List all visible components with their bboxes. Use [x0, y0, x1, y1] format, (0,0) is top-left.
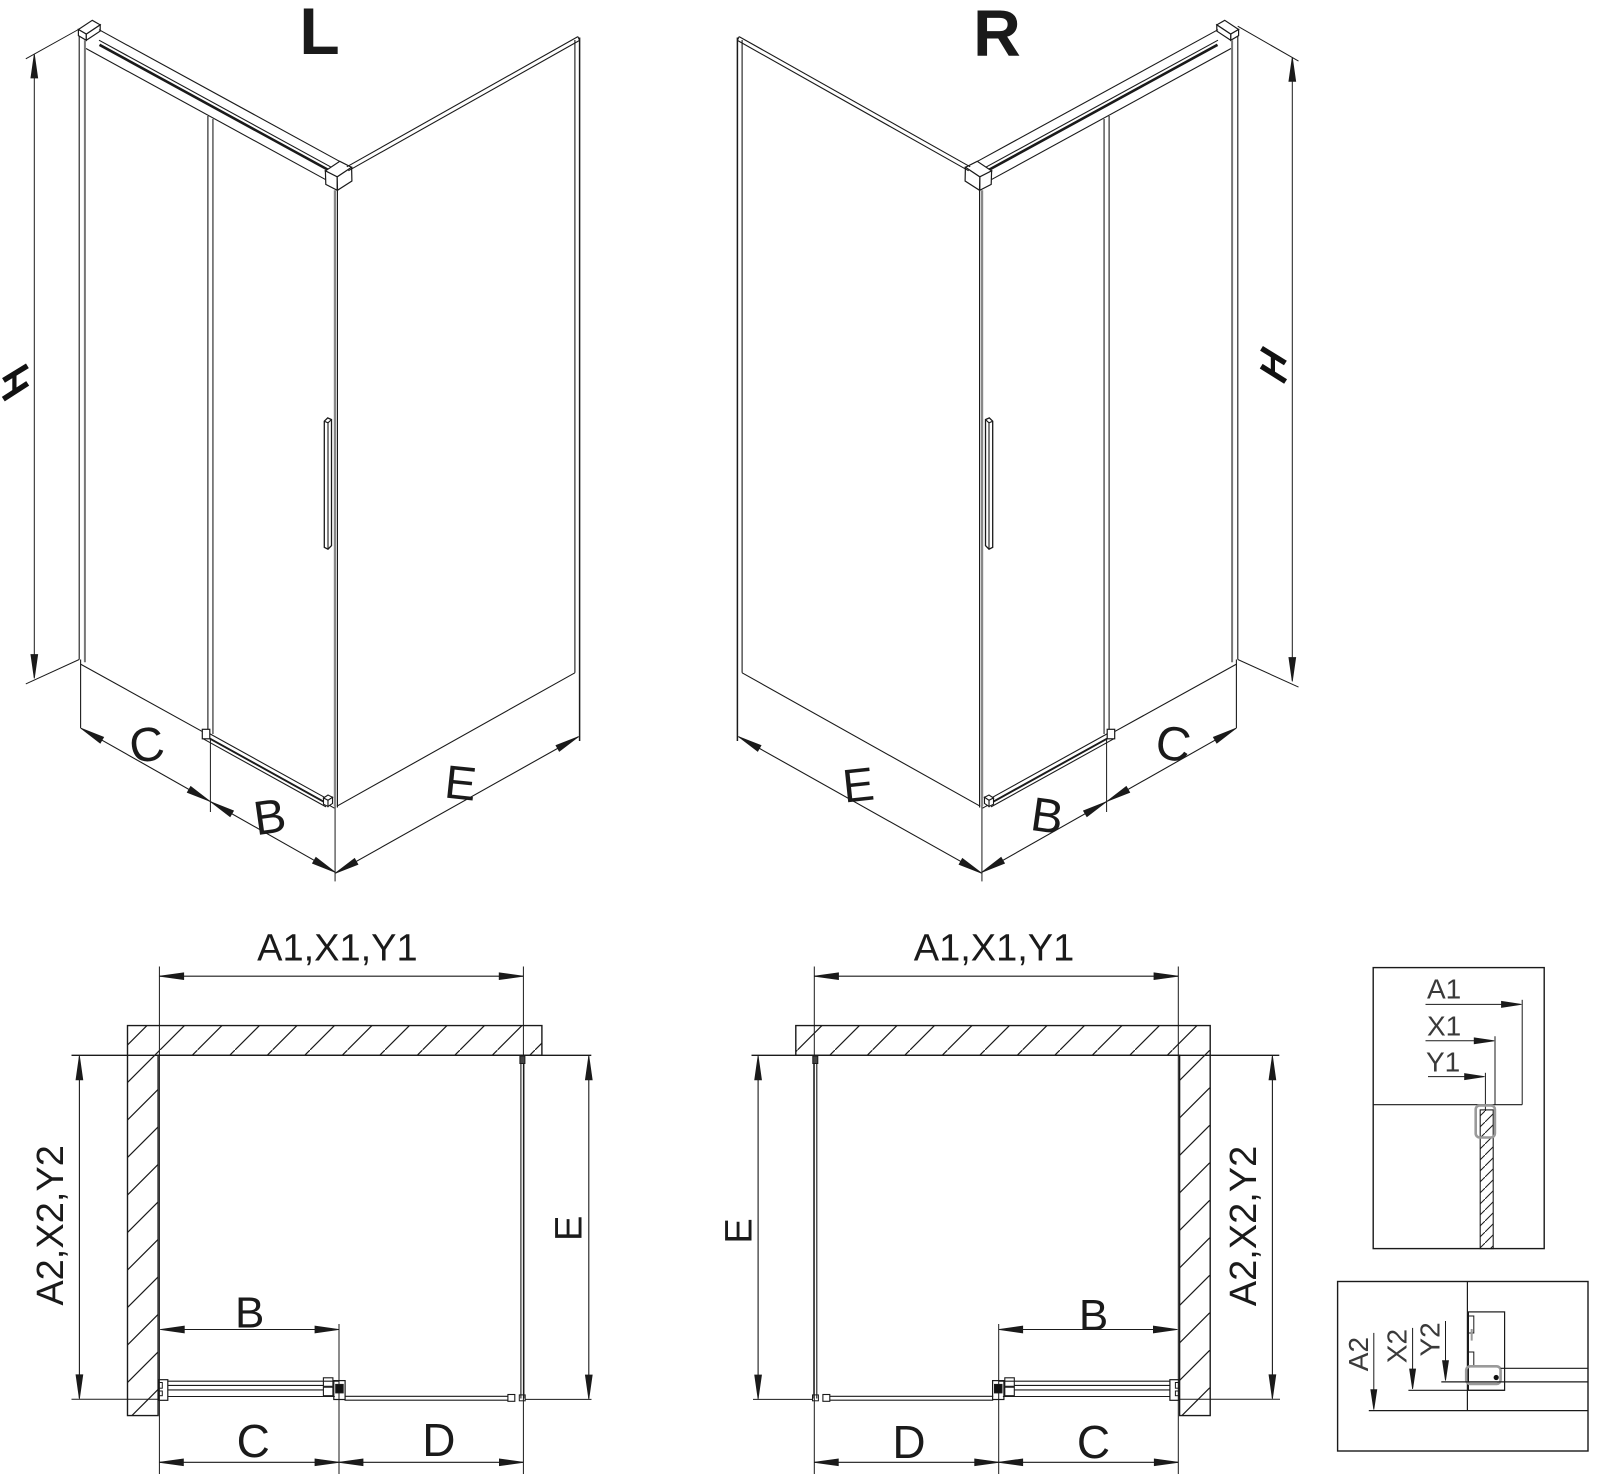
svg-text:A2: A2	[1343, 1337, 1374, 1371]
svg-text:L: L	[299, 0, 339, 68]
svg-text:C: C	[1152, 716, 1194, 773]
svg-text:B: B	[235, 1289, 264, 1338]
svg-text:A2,X2,Y2: A2,X2,Y2	[1223, 1146, 1265, 1307]
svg-text:B: B	[1079, 1291, 1108, 1340]
svg-text:E: E	[719, 1218, 761, 1243]
svg-text:C: C	[237, 1415, 270, 1467]
svg-text:E: E	[442, 755, 479, 811]
svg-text:D: D	[422, 1414, 455, 1466]
svg-text:Y2: Y2	[1415, 1322, 1446, 1356]
svg-text:A1: A1	[1427, 974, 1461, 1005]
svg-text:Y1: Y1	[1426, 1046, 1460, 1077]
svg-text:C: C	[126, 717, 168, 774]
svg-text:A1,X1,Y1: A1,X1,Y1	[257, 928, 418, 970]
svg-text:X2: X2	[1382, 1329, 1413, 1363]
svg-text:A1,X1,Y1: A1,X1,Y1	[914, 928, 1075, 970]
svg-text:D: D	[892, 1416, 925, 1468]
svg-text:A2,X2,Y2: A2,X2,Y2	[30, 1145, 72, 1306]
svg-text:E: E	[549, 1216, 591, 1241]
svg-text:E: E	[840, 757, 877, 813]
svg-text:X1: X1	[1427, 1010, 1461, 1041]
svg-text:R: R	[973, 0, 1021, 69]
svg-text:C: C	[1077, 1416, 1110, 1468]
